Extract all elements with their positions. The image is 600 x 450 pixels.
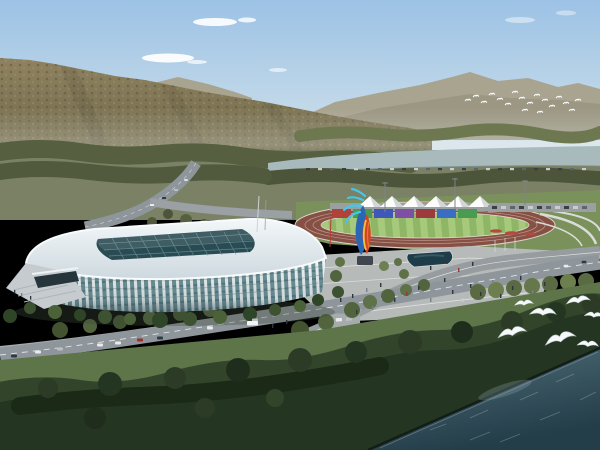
rear-parking-row [488, 205, 596, 212]
bus [247, 321, 258, 326]
rendering-canvas [0, 0, 600, 450]
riverbank-trees [0, 169, 600, 181]
stadium-rendering [0, 0, 600, 450]
reflecting-pool [407, 251, 453, 267]
